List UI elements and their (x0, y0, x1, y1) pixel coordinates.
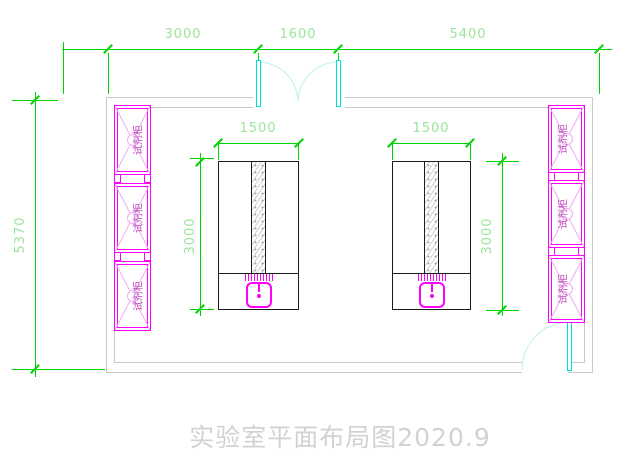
dim-extension-line (190, 309, 214, 310)
dim-extension-line (108, 53, 109, 94)
dim-extension-line (218, 144, 219, 160)
dim-label-bench-left-width: 1500 (228, 122, 288, 136)
sink-drainboard (418, 274, 446, 281)
lab-bench-right (392, 161, 471, 310)
reagent-cabinet-label: 试剂柜 (554, 274, 569, 304)
dim-extension-line (486, 310, 519, 311)
faucet-icon (431, 283, 433, 292)
cabinet-joint (144, 174, 151, 183)
reagent-shelf-hatch (424, 162, 439, 274)
dim-bench-right-length-line (502, 153, 503, 316)
dim-extension-line (258, 53, 259, 60)
dim-extension-line (12, 100, 58, 101)
sink-basin (246, 282, 272, 308)
dim-extension-line (599, 53, 600, 94)
dim-label-top-1: 3000 (153, 28, 213, 42)
cabinet-joint (114, 174, 121, 183)
drawing-title: 实验室平面布局图2020.9 (170, 418, 510, 454)
dim-extension-line (63, 42, 64, 94)
dim-extension-line (12, 369, 105, 370)
drain-dot-icon (430, 294, 434, 298)
dim-label-top-2: 1600 (268, 28, 328, 42)
dim-bench-left-length-line (200, 153, 201, 316)
door-arc-bottom-right (522, 322, 570, 370)
dim-extension-line (470, 144, 471, 160)
reagent-cabinet-right-2: 试剂柜 (548, 180, 585, 248)
reagent-cabinet-left-1: 试剂柜 (114, 105, 151, 175)
dim-left-line (35, 92, 36, 377)
reagent-cabinet-left-2: 试剂柜 (114, 183, 151, 253)
dim-label-bench-right-width: 1500 (401, 122, 461, 136)
door-arc-top-right (298, 62, 338, 102)
reagent-cabinet-label: 试剂柜 (130, 203, 145, 233)
cabinet-joint (114, 252, 121, 261)
reagent-cabinet-label: 试剂柜 (130, 125, 145, 155)
reagent-cabinet-right-3: 试剂柜 (548, 255, 585, 323)
dim-extension-line (298, 144, 299, 160)
floor-plan-canvas: 试剂柜 试剂柜 试剂柜 试剂柜 试剂柜 试剂柜 (0, 0, 619, 469)
drain-dot-icon (257, 294, 261, 298)
lab-bench-left (218, 161, 299, 310)
reagent-shelf-hatch (251, 162, 266, 274)
faucet-icon (258, 283, 260, 292)
door-arc-top-left (258, 62, 298, 102)
dim-label-top-3: 5400 (438, 28, 498, 42)
reagent-cabinet-label: 试剂柜 (130, 281, 145, 311)
dim-label-room-height: 5370 (14, 205, 28, 265)
double-door-left-leaf (256, 60, 261, 107)
reagent-cabinet-label: 试剂柜 (554, 199, 569, 229)
dim-extension-line (486, 161, 519, 162)
dim-extension-line (392, 144, 393, 160)
bottom-door-leaf (567, 320, 572, 371)
reagent-cabinet-right-1: 试剂柜 (548, 105, 585, 173)
dim-label-bench-left-length: 3000 (184, 206, 198, 266)
reagent-cabinet-left-3: 试剂柜 (114, 261, 151, 331)
sink-drainboard (245, 274, 273, 281)
door-swing-arcs (0, 0, 619, 469)
dim-label-bench-right-length: 3000 (481, 206, 495, 266)
dim-bench-left-width-line (218, 143, 299, 144)
sink-basin (419, 282, 445, 308)
dim-extension-line (338, 53, 339, 60)
dim-bench-right-width-line (392, 143, 470, 144)
cabinet-joint (144, 252, 151, 261)
reagent-cabinet-label: 试剂柜 (554, 124, 569, 154)
double-door-right-leaf (336, 60, 341, 107)
dim-extension-line (190, 158, 214, 159)
